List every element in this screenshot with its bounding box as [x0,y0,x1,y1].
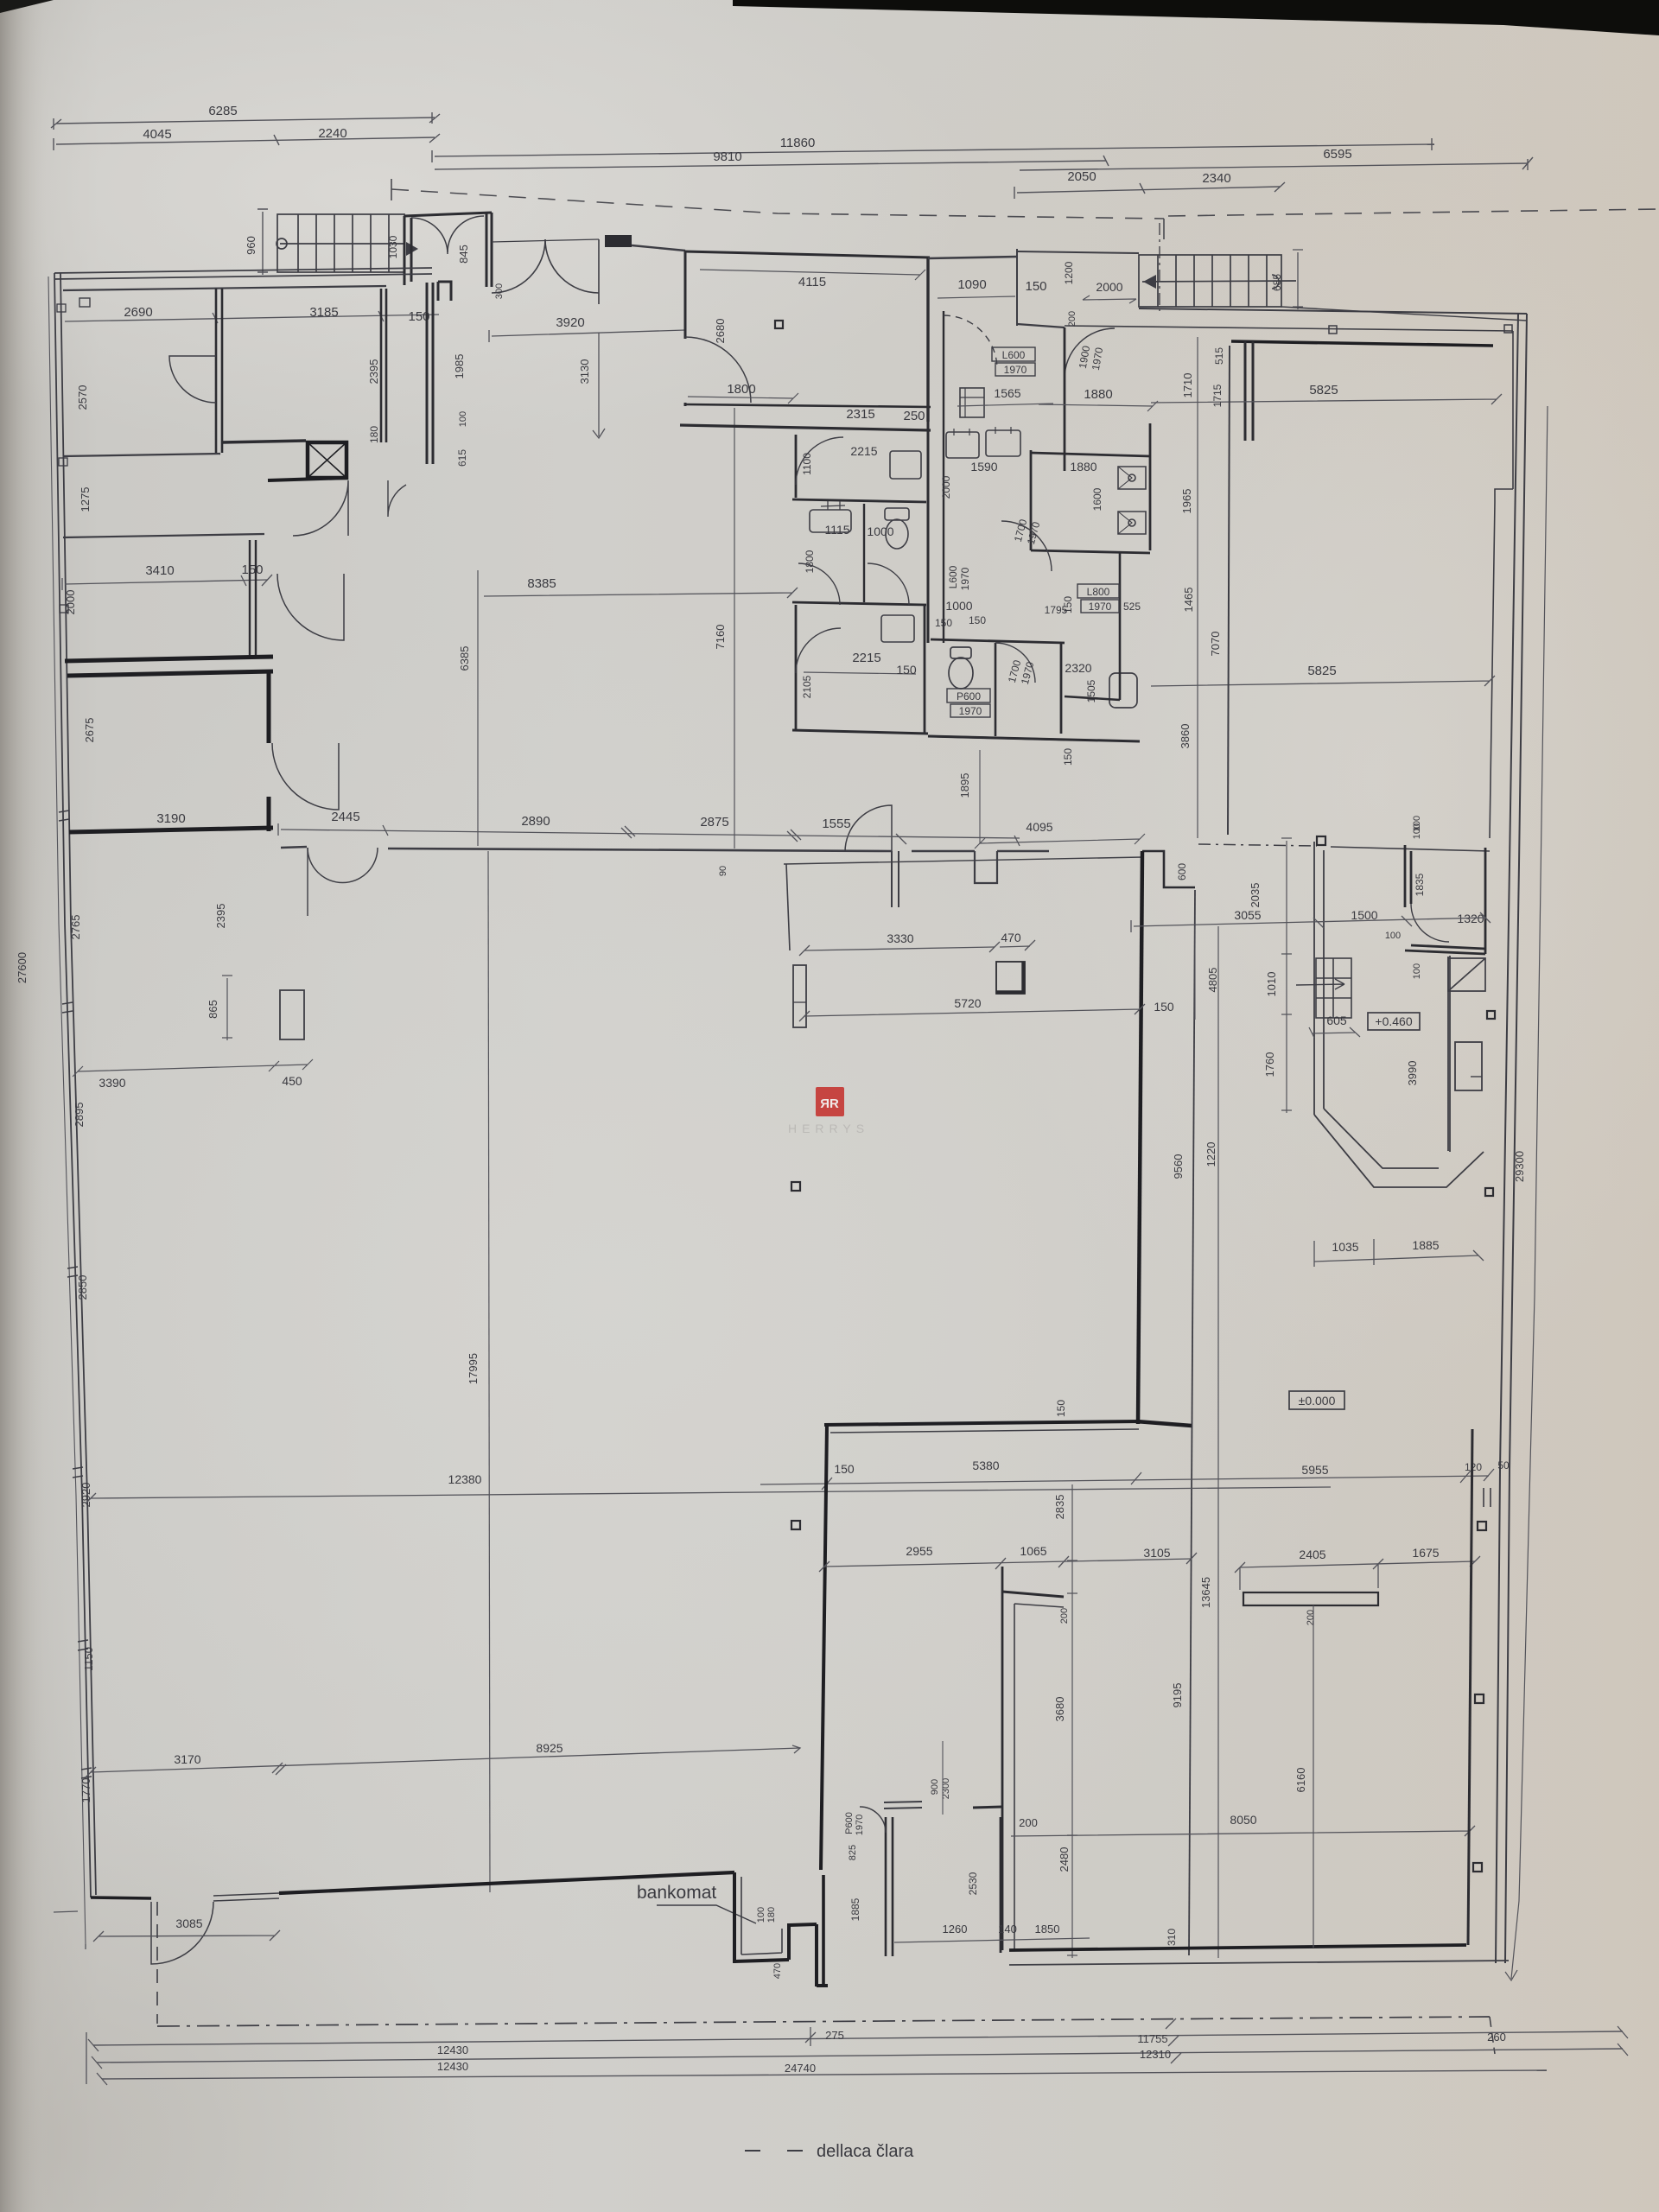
svg-text:11755: 11755 [1137,2032,1167,2045]
svg-text:12310: 12310 [1140,2048,1171,2061]
svg-text:50: 50 [1497,1459,1510,1471]
svg-text:615: 615 [456,449,468,467]
svg-text:7070: 7070 [1209,632,1222,657]
svg-text:1150: 1150 [82,1647,95,1671]
svg-text:1000: 1000 [867,524,893,538]
svg-text:2765: 2765 [69,915,82,940]
svg-text:470: 470 [772,1963,783,1979]
svg-text:2315: 2315 [846,407,874,422]
svg-text:11860: 11860 [780,136,816,150]
svg-text:1795: 1795 [1045,604,1068,616]
svg-text:150: 150 [935,617,952,629]
svg-text:9195: 9195 [1171,1683,1184,1708]
svg-text:3085: 3085 [175,1916,202,1930]
svg-text:1970: 1970 [1004,364,1027,376]
svg-text:600: 600 [1176,863,1188,880]
svg-text:2405: 2405 [1299,1548,1325,1561]
svg-text:bankomat: bankomat [637,1883,716,1903]
svg-text:1970: 1970 [1089,601,1112,613]
svg-text:140: 140 [998,1923,1017,1935]
svg-text:1065: 1065 [1020,1544,1046,1558]
svg-text:P600: P600 [957,690,981,702]
svg-text:6160: 6160 [1294,1768,1307,1793]
svg-text:2570: 2570 [76,385,89,410]
svg-text:2895: 2895 [73,1103,86,1128]
svg-text:2690: 2690 [124,305,152,320]
svg-text:13645: 13645 [1199,1577,1212,1608]
svg-text:8925: 8925 [536,1741,563,1755]
svg-text:1770: 1770 [79,1778,92,1803]
svg-text:1275: 1275 [79,487,92,512]
svg-text:515: 515 [1213,347,1225,365]
svg-text:17995: 17995 [467,1353,480,1384]
svg-text:1100: 1100 [801,453,813,475]
svg-text:6595: 6595 [1323,147,1351,162]
svg-text:100: 100 [1385,931,1401,941]
svg-text:2890: 2890 [521,814,550,829]
svg-text:1710: 1710 [1181,373,1194,398]
svg-text:3105: 3105 [1143,1546,1170,1560]
svg-text:2875: 2875 [700,815,728,829]
svg-text:L600: L600 [947,565,959,588]
svg-text:200: 200 [1019,1816,1038,1829]
svg-text:3860: 3860 [1179,724,1192,749]
svg-text:±0.000: ±0.000 [1299,1394,1336,1408]
svg-text:2835: 2835 [1053,1495,1066,1520]
svg-text:1675: 1675 [1412,1546,1439,1560]
svg-text:1850: 1850 [1035,1923,1060,1935]
svg-text:150: 150 [1025,279,1046,294]
svg-text:100: 100 [1412,823,1422,839]
svg-text:27600: 27600 [16,952,29,983]
svg-text:3390: 3390 [99,1076,125,1090]
svg-text:200: 200 [1059,1608,1070,1624]
svg-text:100: 100 [756,1907,766,1923]
svg-text:7160: 7160 [714,625,727,650]
svg-text:6385: 6385 [458,646,471,671]
svg-text:6285: 6285 [208,104,237,118]
svg-text:2955: 2955 [906,1544,932,1558]
svg-text:180: 180 [368,426,380,443]
svg-text:2445: 2445 [331,810,359,824]
svg-text:1500: 1500 [1351,908,1377,922]
svg-text:P600: P600 [844,1812,855,1834]
svg-text:2035: 2035 [1249,883,1262,908]
svg-text:150: 150 [241,563,263,577]
svg-text:200: 200 [1067,311,1077,327]
svg-text:180: 180 [766,1907,777,1923]
svg-text:9560: 9560 [1172,1154,1185,1179]
svg-text:5955: 5955 [1301,1463,1328,1477]
svg-text:1465: 1465 [1182,588,1195,613]
svg-text:1970: 1970 [959,705,982,717]
svg-text:685: 685 [1271,274,1283,291]
svg-text:150: 150 [834,1462,855,1476]
svg-text:1885: 1885 [1412,1238,1439,1252]
svg-text:4045: 4045 [143,127,171,142]
svg-text:2320: 2320 [1065,661,1091,675]
svg-text:HERRYS: HERRYS [788,1122,869,1135]
svg-text:1555: 1555 [822,817,850,831]
svg-text:12430: 12430 [437,2060,468,2073]
svg-text:1835: 1835 [1414,873,1426,896]
svg-text:2850: 2850 [76,1275,89,1300]
svg-text:1200: 1200 [1063,261,1075,284]
svg-text:260: 260 [1487,2031,1506,2044]
svg-text:12380: 12380 [448,1472,482,1486]
svg-text:3130: 3130 [578,359,591,385]
svg-text:12430: 12430 [437,2044,468,2056]
svg-text:525: 525 [1123,601,1141,613]
svg-text:3680: 3680 [1053,1697,1066,1722]
svg-text:1010: 1010 [1265,972,1278,997]
svg-text:150: 150 [1062,748,1074,766]
svg-text:1970: 1970 [855,1815,865,1835]
svg-text:3330: 3330 [887,931,913,945]
svg-text:1115: 1115 [824,523,849,537]
svg-text:2340: 2340 [1202,171,1230,186]
svg-text:2000: 2000 [64,590,77,615]
svg-text:1260: 1260 [943,1923,968,1935]
svg-text:450: 450 [282,1074,302,1088]
svg-text:3990: 3990 [1406,1061,1419,1086]
svg-text:1000: 1000 [945,599,972,613]
svg-text:+0.460: +0.460 [1375,1014,1412,1028]
svg-text:3055: 3055 [1234,908,1261,922]
svg-text:1895: 1895 [958,773,971,798]
svg-text:1565: 1565 [994,386,1020,400]
svg-text:4095: 4095 [1026,820,1052,834]
svg-text:605: 605 [1326,1014,1347,1027]
svg-text:2050: 2050 [1067,169,1096,184]
svg-text:29300: 29300 [1513,1151,1526,1182]
svg-text:3920: 3920 [556,315,584,330]
svg-text:3185: 3185 [309,305,338,320]
svg-text:2000: 2000 [1096,280,1122,294]
svg-text:90: 90 [718,866,728,876]
svg-text:2680: 2680 [714,319,727,344]
svg-text:5825: 5825 [1307,664,1336,678]
svg-text:3410: 3410 [145,563,174,578]
svg-text:2395: 2395 [214,904,227,929]
svg-text:5720: 5720 [954,996,981,1010]
svg-text:100: 100 [458,411,468,427]
svg-text:1600: 1600 [1091,487,1103,511]
svg-text:1590: 1590 [970,460,997,474]
svg-text:150: 150 [1055,1400,1067,1417]
svg-text:1800: 1800 [804,550,816,573]
svg-text:dellaca člara: dellaca člara [817,2142,914,2161]
svg-text:900: 900 [930,1779,940,1795]
svg-text:1220: 1220 [1205,1142,1217,1167]
svg-text:4805: 4805 [1206,968,1219,993]
svg-text:275: 275 [825,2029,844,2042]
svg-text:310: 310 [1166,1929,1178,1946]
svg-text:150: 150 [896,663,917,677]
svg-text:1030: 1030 [387,235,399,258]
svg-text:2675: 2675 [83,718,96,743]
svg-text:8050: 8050 [1230,1813,1256,1827]
svg-text:2480: 2480 [1058,1847,1071,1872]
svg-text:250: 250 [903,409,925,423]
svg-text:2215: 2215 [852,651,880,665]
svg-text:1885: 1885 [849,1897,861,1921]
svg-text:100: 100 [1412,963,1422,979]
svg-text:1090: 1090 [957,277,986,292]
svg-text:2215: 2215 [850,444,877,458]
svg-text:4115: 4115 [798,275,826,289]
svg-text:1715: 1715 [1211,384,1224,407]
svg-text:ЯR: ЯR [820,1096,839,1111]
svg-text:L600: L600 [1002,349,1026,361]
svg-text:2530: 2530 [967,1872,979,1895]
svg-text:1880: 1880 [1070,460,1096,474]
svg-text:2105: 2105 [801,675,813,698]
svg-text:3170: 3170 [174,1752,200,1766]
svg-text:2395: 2395 [367,359,380,385]
svg-text:2000: 2000 [940,475,952,499]
svg-text:470: 470 [1001,931,1021,944]
svg-text:1760: 1760 [1263,1052,1276,1077]
svg-text:5380: 5380 [972,1459,999,1472]
svg-text:8385: 8385 [527,576,556,591]
svg-text:1970: 1970 [959,567,971,590]
svg-text:L800: L800 [1087,586,1110,598]
svg-text:1800: 1800 [727,382,755,397]
svg-text:150: 150 [969,614,986,626]
svg-text:2240: 2240 [318,126,346,141]
svg-text:845: 845 [457,245,470,264]
svg-text:150: 150 [1154,1000,1174,1014]
svg-text:1985: 1985 [453,354,466,379]
svg-text:1965: 1965 [1180,489,1193,514]
svg-text:24740: 24740 [785,2062,816,2075]
svg-text:200: 200 [1306,1610,1316,1625]
svg-text:9810: 9810 [713,149,741,164]
svg-text:825: 825 [848,1845,858,1860]
svg-text:1880: 1880 [1084,387,1112,402]
svg-text:3190: 3190 [156,811,185,826]
svg-text:5825: 5825 [1309,383,1338,397]
svg-text:865: 865 [207,1000,219,1019]
svg-text:960: 960 [245,236,257,255]
svg-text:1035: 1035 [1332,1240,1358,1254]
